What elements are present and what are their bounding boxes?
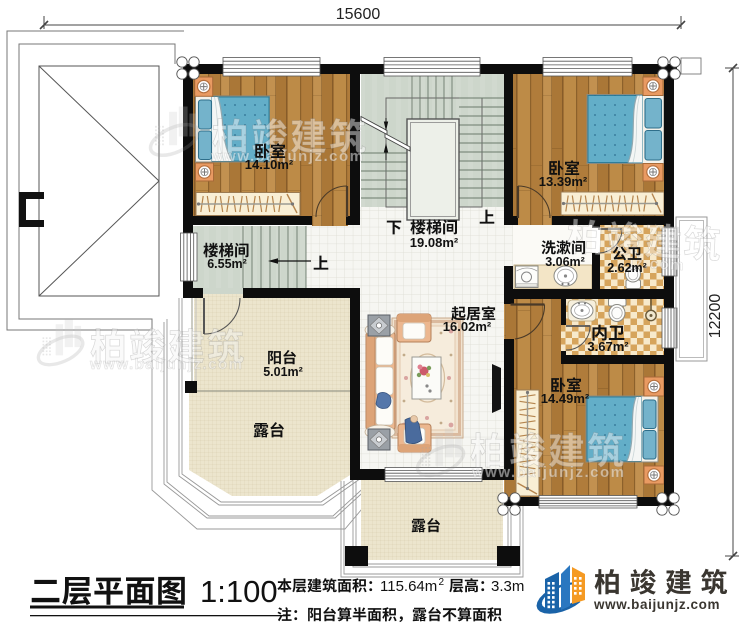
svg-text:12200: 12200 — [707, 294, 724, 339]
svg-text:3.67m²: 3.67m² — [587, 339, 629, 354]
svg-text:16.02m²: 16.02m² — [443, 319, 492, 334]
svg-text:3.06m²: 3.06m² — [545, 255, 585, 269]
svg-text:15600: 15600 — [336, 6, 381, 23]
svg-text:115.64m: 115.64m — [380, 578, 437, 595]
svg-text:2.62m²: 2.62m² — [607, 261, 647, 275]
svg-text:19.08m²: 19.08m² — [410, 235, 459, 250]
svg-text:14.10m²: 14.10m² — [245, 157, 294, 172]
svg-text:www.baijunjz.com: www.baijunjz.com — [593, 597, 720, 612]
svg-text:13.39m²: 13.39m² — [539, 174, 588, 189]
svg-text:5.01m²: 5.01m² — [263, 365, 303, 379]
svg-text:14.49m²: 14.49m² — [541, 391, 590, 406]
svg-text:2: 2 — [439, 577, 445, 588]
svg-text:1:100: 1:100 — [200, 574, 278, 609]
svg-text:www.baijunjz.com: www.baijunjz.com — [89, 356, 243, 373]
svg-text:www.baijunjz.com: www.baijunjz.com — [471, 464, 625, 481]
svg-text:6.55m²: 6.55m² — [207, 257, 247, 271]
svg-text:3.3m: 3.3m — [491, 578, 524, 595]
